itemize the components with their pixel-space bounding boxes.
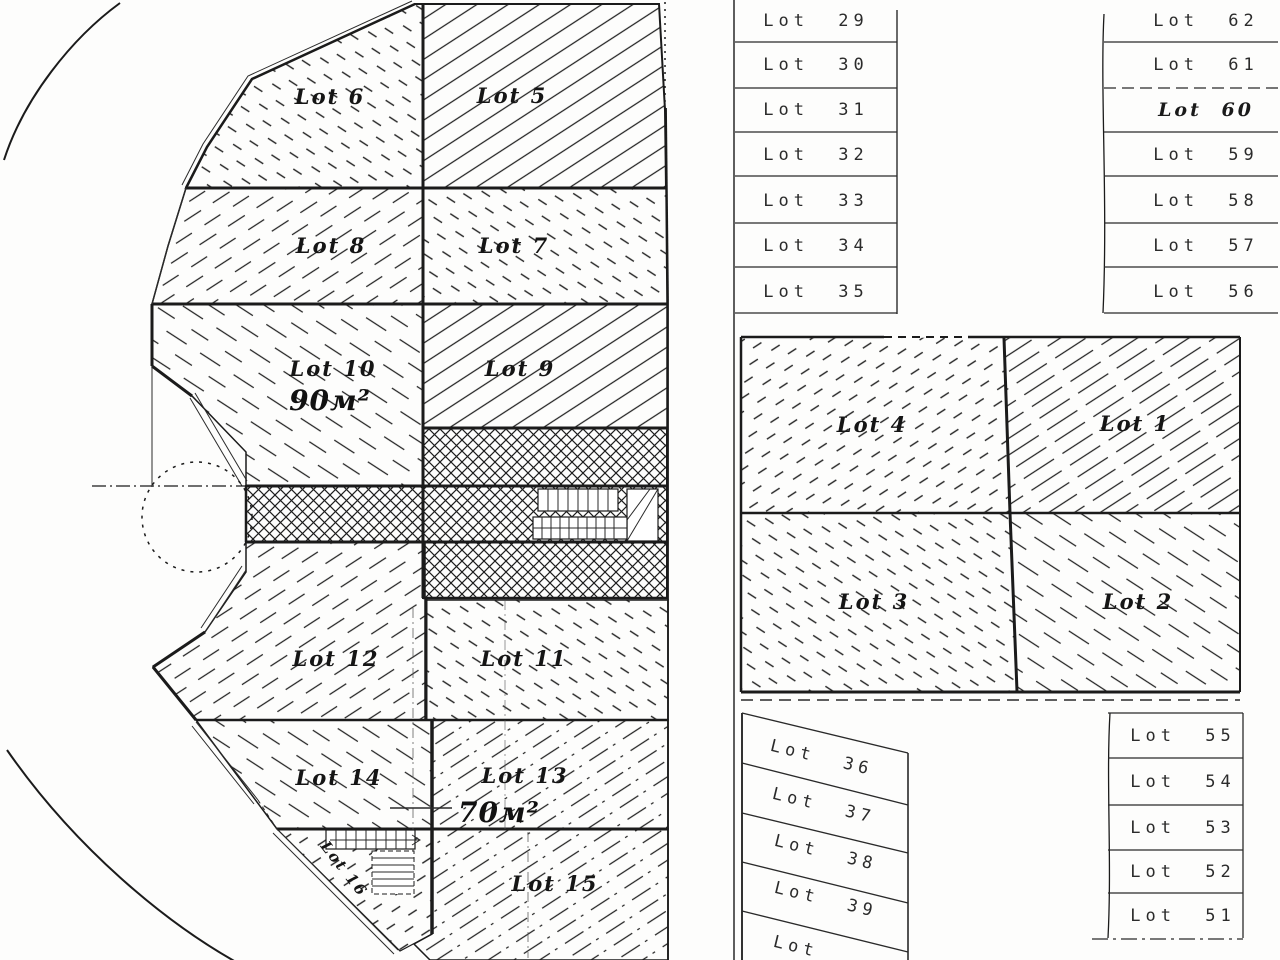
lot-7-label: Lot 7 xyxy=(478,233,549,258)
lot-15-label: Lot 15 xyxy=(510,871,598,896)
lot-10-area-label: 90м² xyxy=(289,384,371,417)
lot-9-label: Lot 9 xyxy=(484,356,555,381)
lot-6-label: Lot 6 xyxy=(294,84,365,109)
top-table-right-row-label: Lot 57 xyxy=(1153,236,1258,256)
top-table-left-row-label: Lot 29 xyxy=(763,11,868,31)
bottom-table-right-row-label: Lot 53 xyxy=(1130,818,1235,838)
top-table-right-row-label: Lot 56 xyxy=(1153,282,1258,302)
block-lots-1-4: Lot 4 Lot 1 Lot 3 Lot 2 xyxy=(741,337,1240,700)
top-table-left-row-label: Lot 30 xyxy=(763,55,868,75)
top-table-right-row-label: Lot 58 xyxy=(1153,191,1258,211)
top-table-left-row-label: Lot 31 xyxy=(763,100,868,120)
bottom-table-right-row-label: Lot 54 xyxy=(1130,772,1235,792)
lot-5-label: Lot 5 xyxy=(476,83,547,108)
bottom-table-right-row-label: Lot 55 xyxy=(1130,726,1235,746)
top-table-left-row-label: Lot 35 xyxy=(763,282,868,302)
lot-2-label: Lot 2 xyxy=(1102,589,1173,614)
top-table-right-row-label: Lot 62 xyxy=(1153,11,1258,31)
top-table-left-row-label: Lot 33 xyxy=(763,191,868,211)
lot-4-label: Lot 4 xyxy=(836,412,907,437)
top-table-right-row-label: Lot 60 xyxy=(1157,99,1254,121)
lot-13-label: Lot 13 xyxy=(480,763,568,788)
top-table-left-row-label: Lot 32 xyxy=(763,145,868,165)
bottom-table-right-row-label: Lot 51 xyxy=(1130,906,1235,926)
top-table-right-row-label: Lot 59 xyxy=(1153,145,1258,165)
lot-8-region xyxy=(152,188,423,304)
site-plan-svg: Lot 6 Lot 5 Lot 8 Lot 7 Lot 10 90м² Lot … xyxy=(0,0,1280,960)
lot-1-label: Lot 1 xyxy=(1099,411,1170,436)
bottom-table-right-row-label: Lot 52 xyxy=(1130,862,1235,882)
lot-12-label: Lot 12 xyxy=(291,646,379,671)
lot-10-label: Lot 10 xyxy=(288,356,376,381)
top-table-left-row-label: Lot 34 xyxy=(763,236,868,256)
lot-8-label: Lot 8 xyxy=(295,233,366,258)
lot-11-label: Lot 11 xyxy=(479,646,567,671)
top-table-right-row-label: Lot 61 xyxy=(1153,55,1258,75)
lot-13-area-label: 70м² xyxy=(458,796,540,829)
scanned-lot-plan: Lot 6 Lot 5 Lot 8 Lot 7 Lot 10 90м² Lot … xyxy=(0,0,1280,960)
lot-3-label: Lot 3 xyxy=(838,589,909,614)
lot-14-label: Lot 14 xyxy=(294,765,382,790)
